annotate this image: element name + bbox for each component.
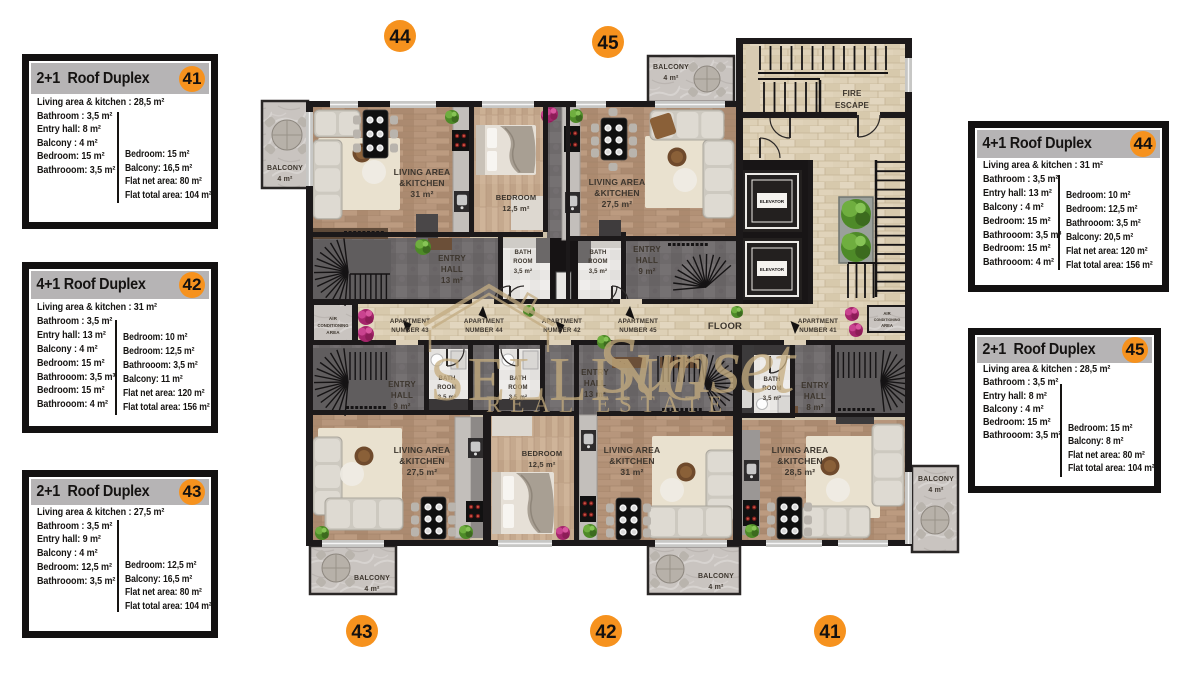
svg-text:44: 44 (389, 27, 411, 48)
svg-text:ENTRY: ENTRY (438, 254, 466, 263)
svg-text:42: 42 (595, 622, 616, 643)
svg-text:LIVING AREA: LIVING AREA (772, 445, 829, 455)
svg-text:12,5 m²: 12,5 m² (528, 460, 556, 469)
svg-text:HALL: HALL (636, 256, 658, 265)
svg-text:4 m²: 4 m² (364, 586, 380, 593)
svg-text:4 m²: 4 m² (928, 487, 944, 494)
svg-text:HALL: HALL (441, 265, 463, 274)
svg-text:27,5 m²: 27,5 m² (602, 199, 633, 209)
svg-text:AREA: AREA (326, 330, 340, 335)
svg-text:BATH: BATH (589, 250, 606, 256)
svg-text:HALL: HALL (804, 392, 826, 401)
svg-text:4 m²: 4 m² (663, 75, 679, 82)
svg-text:ENTRY: ENTRY (633, 245, 661, 254)
svg-text:REAL ESTATE: REAL ESTATE (486, 392, 731, 417)
svg-text:ROOM: ROOM (513, 259, 532, 265)
svg-text:NUMBER 43: NUMBER 43 (391, 327, 429, 334)
svg-text:APARTMENT: APARTMENT (798, 318, 838, 325)
svg-text:3,5 m²: 3,5 m² (514, 268, 533, 275)
svg-text:BALCONY: BALCONY (354, 575, 390, 582)
svg-text:FIRE: FIRE (842, 89, 861, 98)
svg-text:4 m²: 4 m² (708, 584, 724, 591)
svg-text:BATH: BATH (514, 250, 531, 256)
svg-text:NUMBER 44: NUMBER 44 (465, 327, 503, 334)
svg-text:NUMBER 41: NUMBER 41 (799, 327, 837, 334)
svg-text:HALL: HALL (391, 391, 413, 400)
svg-text:BEDROOM: BEDROOM (522, 449, 563, 458)
svg-text:BALCONY: BALCONY (918, 476, 954, 483)
svg-text:BALCONY: BALCONY (698, 573, 734, 580)
svg-text:AIR: AIR (883, 311, 890, 316)
svg-text:CONDITIONING: CONDITIONING (874, 318, 901, 322)
svg-text:ENTRY: ENTRY (801, 381, 829, 390)
svg-text:&KITCHEN: &KITCHEN (594, 188, 640, 198)
svg-text:BALCONY: BALCONY (267, 165, 303, 172)
svg-text:&KITCHEN: &KITCHEN (777, 456, 823, 466)
svg-text:LIVING AREA: LIVING AREA (604, 445, 661, 455)
svg-text:ELEVATOR: ELEVATOR (760, 199, 785, 204)
svg-text:27,5 m²: 27,5 m² (407, 467, 438, 477)
svg-text:45: 45 (597, 33, 619, 54)
svg-text:43: 43 (351, 622, 372, 643)
svg-text:ROOM: ROOM (588, 259, 607, 265)
svg-text:&KITCHEN: &KITCHEN (609, 456, 655, 466)
svg-text:4 m²: 4 m² (277, 176, 293, 183)
svg-text:9 m²: 9 m² (638, 267, 655, 276)
svg-text:AREA: AREA (881, 323, 893, 328)
svg-text:28,5 m²: 28,5 m² (785, 467, 816, 477)
svg-text:31 m²: 31 m² (620, 467, 643, 477)
svg-text:LIVING AREA: LIVING AREA (394, 167, 451, 177)
svg-text:3,5 m²: 3,5 m² (589, 268, 608, 275)
svg-text:31 m²: 31 m² (410, 189, 433, 199)
svg-text:&KITCHEN: &KITCHEN (399, 456, 445, 466)
svg-text:ESCAPE: ESCAPE (835, 101, 870, 110)
svg-text:LIVING AREA: LIVING AREA (589, 177, 646, 187)
svg-text:9 m²: 9 m² (393, 402, 410, 411)
svg-text:APARTMENT: APARTMENT (464, 318, 504, 325)
svg-text:BEDROOM: BEDROOM (496, 193, 537, 202)
svg-text:AIR: AIR (329, 316, 338, 321)
svg-text:ELEVATOR: ELEVATOR (760, 267, 785, 272)
svg-text:CONDITIONING: CONDITIONING (318, 323, 349, 328)
svg-text:LIVING AREA: LIVING AREA (394, 445, 451, 455)
svg-text:BALCONY: BALCONY (653, 64, 689, 71)
svg-text:13 m²: 13 m² (441, 276, 463, 285)
svg-text:&KITCHEN: &KITCHEN (399, 178, 445, 188)
svg-text:12,5 m²: 12,5 m² (502, 204, 530, 213)
svg-text:41: 41 (819, 622, 841, 643)
svg-text:8 m²: 8 m² (806, 403, 823, 412)
svg-text:ENTRY: ENTRY (388, 380, 416, 389)
